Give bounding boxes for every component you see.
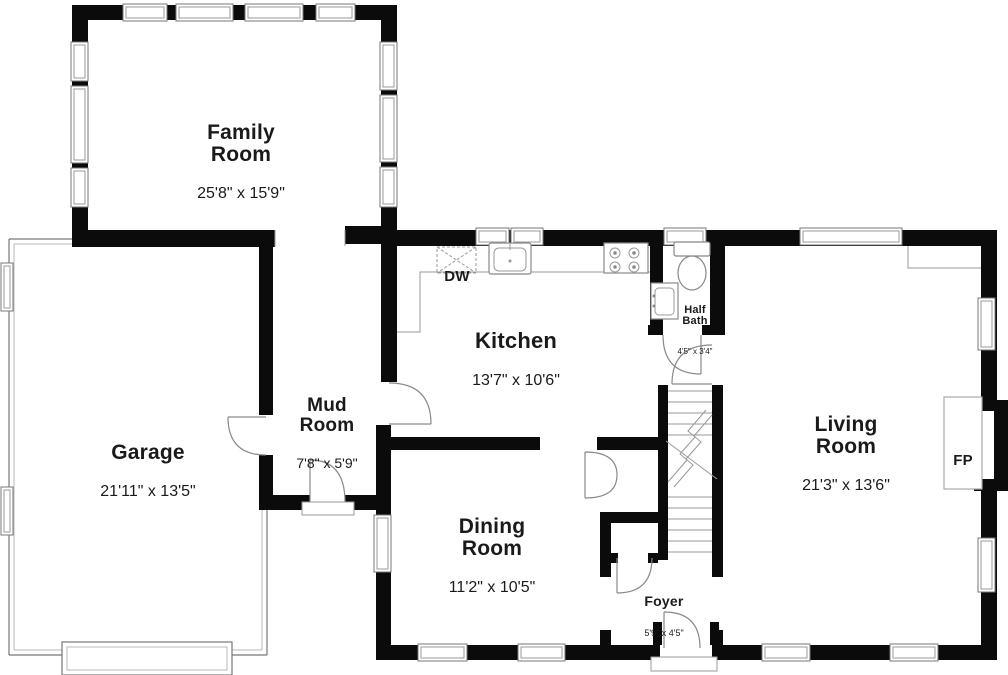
dishwasher-text: DW xyxy=(444,269,469,285)
garage-to-mudroom-door xyxy=(228,417,266,455)
dining-double-doors xyxy=(585,452,617,498)
mud-room-name: Mud Room xyxy=(296,396,357,436)
living-room-closet-outline xyxy=(908,246,981,268)
room-label-dining-room: Dining Room 11'2" x 10'5" xyxy=(449,498,536,615)
kitchen-dims: 13'7" x 10'6" xyxy=(472,372,560,390)
mudroom-to-kitchen-door xyxy=(389,383,431,424)
garage-dims: 21'11" x 13'5" xyxy=(100,483,195,501)
living-room-name: Living Room xyxy=(802,414,890,458)
kitchen-sink xyxy=(489,243,531,274)
dishwasher-label: DW xyxy=(444,251,469,303)
room-label-living-room: Living Room 21'3" x 13'6" xyxy=(802,396,890,513)
garage-door xyxy=(62,642,232,675)
foyer-dims: 5'9" x 4'5" xyxy=(644,628,683,638)
garage-name: Garage xyxy=(100,442,195,464)
family-room-dims: 25'8" x 15'9" xyxy=(197,185,285,203)
staircase xyxy=(666,391,717,552)
half-bath-name: Half Bath xyxy=(678,305,713,328)
room-label-foyer: Foyer 5'9" x 4'5" xyxy=(644,576,683,656)
room-label-kitchen: Kitchen 13'7" x 10'6" xyxy=(472,312,560,408)
toilet xyxy=(674,242,710,290)
room-label-mud-room: Mud Room 7'8" x 5'9" xyxy=(296,378,357,489)
foyer-name: Foyer xyxy=(644,594,683,609)
living-room-dims: 21'3" x 13'6" xyxy=(802,477,890,495)
fireplace-text: FP xyxy=(953,453,973,469)
fireplace-label: FP xyxy=(953,435,973,487)
room-label-family-room: Family Room 25'8" x 15'9" xyxy=(197,104,285,221)
room-label-half-bath: Half Bath 4'5" x 3'4" xyxy=(678,287,713,374)
room-label-garage: Garage 21'11" x 13'5" xyxy=(100,424,195,519)
family-room-name: Family Room xyxy=(197,122,285,166)
floor-plan: Family Room 25'8" x 15'9" Garage 21'11" … xyxy=(0,0,1008,675)
mud-room-dims: 7'8" x 5'9" xyxy=(296,455,357,471)
kitchen-name: Kitchen xyxy=(472,330,560,353)
dining-room-name: Dining Room xyxy=(449,516,536,560)
half-bath-dims: 4'5" x 3'4" xyxy=(678,347,713,356)
family-to-mudroom-opening xyxy=(275,230,345,247)
dining-room-dims: 11'2" x 10'5" xyxy=(449,579,536,597)
stove xyxy=(604,243,648,273)
bathroom-vanity-sink xyxy=(651,283,678,319)
